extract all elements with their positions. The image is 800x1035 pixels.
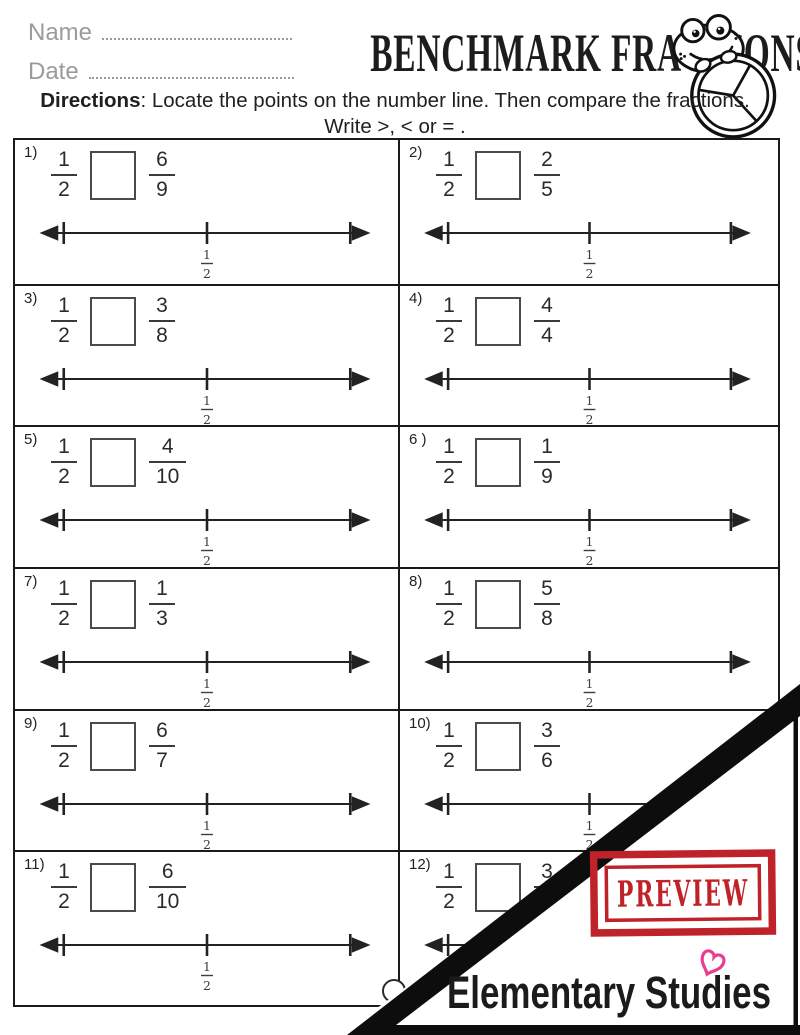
numerator: 6 bbox=[149, 719, 175, 745]
problem-cell: 3) 1 2 3 8 1 2 bbox=[15, 286, 400, 425]
denominator: 2 bbox=[436, 174, 462, 202]
fraction-right: 2 5 bbox=[534, 148, 560, 202]
numerator: 2 bbox=[534, 148, 560, 174]
benchmark-label-denominator: 2 bbox=[586, 979, 594, 993]
numerator: 3 bbox=[149, 294, 175, 320]
benchmark-label-denominator: 2 bbox=[203, 695, 211, 710]
problem-number: 2) bbox=[409, 144, 422, 161]
numerator: 1 bbox=[436, 577, 462, 603]
answer-box[interactable] bbox=[475, 297, 521, 346]
worksheet-page: Name Date BENCHMARK FRACTIONS bbox=[0, 0, 800, 1035]
denominator: 2 bbox=[51, 174, 77, 202]
fraction-right: 4 4 bbox=[534, 294, 560, 348]
problem-cell: 11) 1 2 6 10 1 2 bbox=[15, 852, 400, 1005]
benchmark-label-numerator: 1 bbox=[586, 394, 594, 408]
fraction-comparison: 1 2 1 9 bbox=[436, 435, 560, 489]
numerator: 6 bbox=[149, 148, 175, 174]
benchmark-label-numerator: 1 bbox=[586, 819, 594, 833]
problem-cell: 8) 1 2 5 8 1 2 bbox=[400, 569, 778, 709]
benchmark-label-numerator: 1 bbox=[203, 818, 211, 833]
fraction-comparison: 1 2 3 8 bbox=[51, 294, 175, 348]
number-line: 1 2 bbox=[15, 793, 398, 853]
numerator: 1 bbox=[51, 719, 77, 745]
benchmark-label-denominator: 2 bbox=[203, 412, 211, 427]
number-line: 1 2 bbox=[15, 222, 398, 282]
answer-box[interactable] bbox=[475, 722, 521, 771]
fraction-comparison: 1 2 1 3 bbox=[51, 577, 175, 631]
fraction-left: 1 2 bbox=[436, 577, 462, 631]
benchmark-label-denominator: 2 bbox=[203, 266, 211, 281]
number-line: 1 2 bbox=[400, 368, 778, 428]
fraction-right: 6 7 bbox=[149, 719, 175, 773]
numerator: 3 bbox=[534, 719, 560, 745]
numerator: 1 bbox=[436, 860, 462, 886]
problem-number: 12) bbox=[409, 856, 431, 873]
directions-line2: Write >, < or = . bbox=[0, 114, 790, 140]
name-date-block: Name Date bbox=[28, 18, 294, 96]
corner-bottom-edge bbox=[360, 1025, 800, 1035]
number-line: 1 2 bbox=[400, 793, 778, 853]
fraction-left: 1 2 bbox=[51, 435, 77, 489]
problem-cell: 12) 1 2 3 1 2 bbox=[400, 852, 778, 1005]
benchmark-label-denominator: 2 bbox=[586, 838, 594, 852]
fraction-right: 4 10 bbox=[149, 435, 186, 489]
problem-number: 7) bbox=[24, 573, 37, 590]
problem-row: 3) 1 2 3 8 1 2 4) 1 bbox=[15, 284, 778, 425]
numerator: 1 bbox=[436, 719, 462, 745]
benchmark-label-denominator: 2 bbox=[586, 554, 594, 568]
fraction-left: 1 2 bbox=[51, 577, 77, 631]
denominator: 3 bbox=[149, 603, 175, 631]
numerator: 1 bbox=[436, 148, 462, 174]
denominator: 2 bbox=[51, 886, 77, 914]
problem-cell: 5) 1 2 4 10 1 2 bbox=[15, 427, 400, 567]
answer-box[interactable] bbox=[90, 722, 136, 771]
fraction-right: 5 8 bbox=[534, 577, 560, 631]
fraction-left: 1 2 bbox=[51, 860, 77, 914]
problem-row: 5) 1 2 4 10 1 2 6 ) 1 bbox=[15, 425, 778, 567]
fraction-right: 3 8 bbox=[149, 294, 175, 348]
denominator: 10 bbox=[149, 461, 186, 489]
answer-box[interactable] bbox=[475, 151, 521, 200]
number-line: 1 2 bbox=[400, 934, 778, 994]
problem-number: 6 ) bbox=[409, 431, 427, 448]
numerator: 1 bbox=[51, 148, 77, 174]
numerator: 1 bbox=[51, 577, 77, 603]
problem-row: 11) 1 2 6 10 1 2 12) 1 bbox=[15, 850, 778, 1005]
denominator: 8 bbox=[149, 320, 175, 348]
page-title: BENCHMARK FRACTIONS bbox=[300, 22, 660, 73]
denominator: 2 bbox=[436, 886, 462, 914]
fraction-left: 1 2 bbox=[436, 860, 462, 914]
fraction-left: 1 2 bbox=[51, 148, 77, 202]
fraction-left: 1 2 bbox=[436, 719, 462, 773]
problem-number: 5) bbox=[24, 431, 37, 448]
denominator: 2 bbox=[51, 461, 77, 489]
denominator: 2 bbox=[51, 603, 77, 631]
answer-box[interactable] bbox=[475, 580, 521, 629]
numerator: 1 bbox=[436, 435, 462, 461]
fraction-comparison: 1 2 4 4 bbox=[436, 294, 560, 348]
answer-box[interactable] bbox=[90, 863, 136, 912]
problem-cell: 4) 1 2 4 4 1 2 bbox=[400, 286, 778, 425]
benchmark-label-numerator: 1 bbox=[203, 393, 211, 408]
fraction-right: 1 9 bbox=[534, 435, 560, 489]
problem-number: 4) bbox=[409, 290, 422, 307]
denominator: 7 bbox=[149, 745, 175, 773]
denominator: 6 bbox=[534, 745, 560, 773]
fraction-right: 6 10 bbox=[149, 860, 186, 914]
problems-grid: 1) 1 2 6 9 1 2 2) 1 bbox=[13, 138, 780, 1007]
fraction-left: 1 2 bbox=[51, 719, 77, 773]
fraction-comparison: 1 2 2 5 bbox=[436, 148, 560, 202]
denominator: 2 bbox=[436, 745, 462, 773]
problem-number: 11) bbox=[24, 856, 45, 873]
numerator: 1 bbox=[51, 860, 77, 886]
answer-box[interactable] bbox=[90, 438, 136, 487]
denominator: 2 bbox=[436, 461, 462, 489]
denominator: 2 bbox=[51, 320, 77, 348]
answer-box[interactable] bbox=[475, 863, 521, 912]
denominator: 2 bbox=[436, 603, 462, 631]
problem-number: 8) bbox=[409, 573, 422, 590]
benchmark-label-numerator: 1 bbox=[203, 959, 211, 974]
numerator: 6 bbox=[149, 860, 186, 886]
numerator: 1 bbox=[51, 294, 77, 320]
denominator: 9 bbox=[149, 174, 175, 202]
problem-number: 10) bbox=[409, 715, 431, 732]
benchmark-label-numerator: 1 bbox=[203, 247, 211, 262]
problem-cell: 10) 1 2 3 6 1 2 bbox=[400, 711, 778, 850]
number-line: 1 2 bbox=[15, 934, 398, 994]
fraction-comparison: 1 2 6 9 bbox=[51, 148, 175, 202]
answer-box[interactable] bbox=[90, 151, 136, 200]
problem-number: 9) bbox=[24, 715, 37, 732]
denominator: 8 bbox=[534, 603, 560, 631]
name-write-line[interactable] bbox=[102, 18, 292, 40]
problem-cell: 1) 1 2 6 9 1 2 bbox=[15, 140, 400, 284]
number-line: 1 2 bbox=[400, 509, 778, 569]
denominator bbox=[534, 886, 560, 914]
number-line: 1 2 bbox=[15, 509, 398, 569]
fraction-left: 1 2 bbox=[51, 294, 77, 348]
problem-row: 1) 1 2 6 9 1 2 2) 1 bbox=[15, 140, 778, 284]
fraction-comparison: 1 2 3 bbox=[436, 860, 560, 914]
fraction-right: 3 6 bbox=[534, 719, 560, 773]
fraction-comparison: 1 2 5 8 bbox=[436, 577, 560, 631]
date-write-line[interactable] bbox=[89, 57, 294, 79]
problem-row: 9) 1 2 6 7 1 2 10) 1 bbox=[15, 709, 778, 850]
numerator: 1 bbox=[51, 435, 77, 461]
benchmark-label-denominator: 2 bbox=[203, 553, 211, 568]
numerator: 1 bbox=[149, 577, 175, 603]
directions-label: Directions bbox=[40, 89, 140, 112]
fraction-right: 6 9 bbox=[149, 148, 175, 202]
fraction-comparison: 1 2 6 7 bbox=[51, 719, 175, 773]
problem-cell: 2) 1 2 2 5 1 2 bbox=[400, 140, 778, 284]
benchmark-label-denominator: 2 bbox=[203, 978, 211, 993]
corner-right-edge bbox=[794, 700, 799, 1035]
numerator: 4 bbox=[534, 294, 560, 320]
benchmark-label-numerator: 1 bbox=[203, 534, 211, 549]
date-label: Date bbox=[28, 58, 79, 85]
benchmark-label-numerator: 1 bbox=[203, 676, 211, 691]
benchmark-label-denominator: 2 bbox=[203, 837, 211, 852]
denominator: 4 bbox=[534, 320, 560, 348]
problem-cell: 9) 1 2 6 7 1 2 bbox=[15, 711, 400, 850]
numerator: 3 bbox=[534, 860, 560, 886]
benchmark-label-numerator: 1 bbox=[586, 960, 594, 974]
number-line: 1 2 bbox=[400, 651, 778, 711]
benchmark-label-numerator: 1 bbox=[586, 535, 594, 549]
denominator: 5 bbox=[534, 174, 560, 202]
benchmark-label-denominator: 2 bbox=[586, 696, 594, 710]
directions-text: : Locate the points on the number line. … bbox=[140, 89, 749, 112]
fraction-left: 1 2 bbox=[436, 294, 462, 348]
benchmark-label-numerator: 1 bbox=[586, 677, 594, 691]
fraction-comparison: 1 2 6 10 bbox=[51, 860, 186, 914]
number-line: 1 2 bbox=[15, 368, 398, 428]
name-label: Name bbox=[28, 19, 92, 46]
answer-box[interactable] bbox=[90, 297, 136, 346]
number-line: 1 2 bbox=[15, 651, 398, 711]
fraction-left: 1 2 bbox=[436, 148, 462, 202]
benchmark-label-denominator: 2 bbox=[586, 413, 594, 427]
benchmark-label-denominator: 2 bbox=[586, 267, 594, 281]
denominator: 2 bbox=[436, 320, 462, 348]
fraction-right: 1 3 bbox=[149, 577, 175, 631]
problem-row: 7) 1 2 1 3 1 2 8) 1 bbox=[15, 567, 778, 709]
problem-number: 1) bbox=[24, 144, 37, 161]
answer-box[interactable] bbox=[475, 438, 521, 487]
directions: Directions: Locate the points on the num… bbox=[0, 88, 790, 139]
numerator: 4 bbox=[149, 435, 186, 461]
problem-cell: 7) 1 2 1 3 1 2 bbox=[15, 569, 400, 709]
fraction-left: 1 2 bbox=[436, 435, 462, 489]
number-line: 1 2 bbox=[400, 222, 778, 282]
denominator: 10 bbox=[149, 886, 186, 914]
fraction-right: 3 bbox=[534, 860, 560, 914]
problem-number: 3) bbox=[24, 290, 37, 307]
fraction-comparison: 1 2 3 6 bbox=[436, 719, 560, 773]
answer-box[interactable] bbox=[90, 580, 136, 629]
numerator: 5 bbox=[534, 577, 560, 603]
denominator: 9 bbox=[534, 461, 560, 489]
numerator: 1 bbox=[436, 294, 462, 320]
fraction-comparison: 1 2 4 10 bbox=[51, 435, 186, 489]
numerator: 1 bbox=[534, 435, 560, 461]
benchmark-label-numerator: 1 bbox=[586, 248, 594, 262]
denominator: 2 bbox=[51, 745, 77, 773]
problem-cell: 6 ) 1 2 1 9 1 2 bbox=[400, 427, 778, 567]
